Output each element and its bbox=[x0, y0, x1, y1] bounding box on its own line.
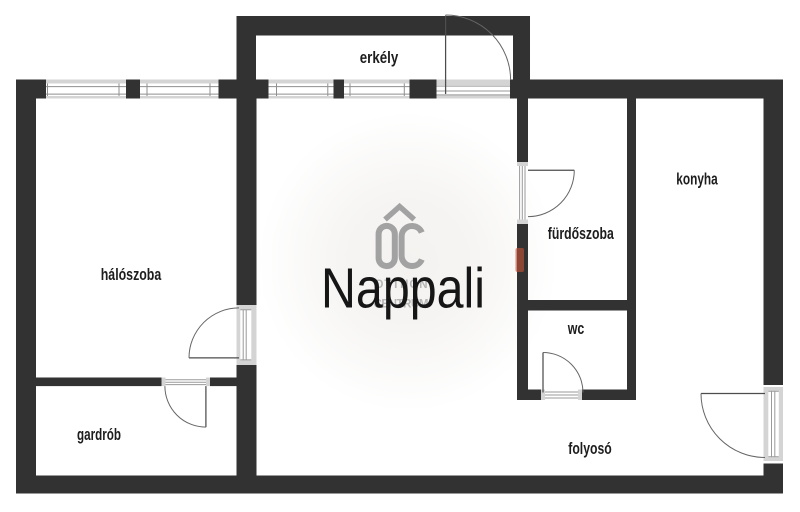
svg-text:fürdőszoba: fürdőszoba bbox=[548, 225, 615, 243]
svg-text:konyha: konyha bbox=[676, 171, 718, 189]
svg-text:wc: wc bbox=[567, 320, 584, 338]
svg-text:erkély: erkély bbox=[360, 49, 399, 67]
svg-text:folyosó: folyosó bbox=[568, 440, 612, 458]
svg-text:hálószoba: hálószoba bbox=[101, 266, 162, 284]
svg-text:gardrób: gardrób bbox=[77, 426, 121, 444]
svg-text:Nappali: Nappali bbox=[321, 257, 485, 320]
